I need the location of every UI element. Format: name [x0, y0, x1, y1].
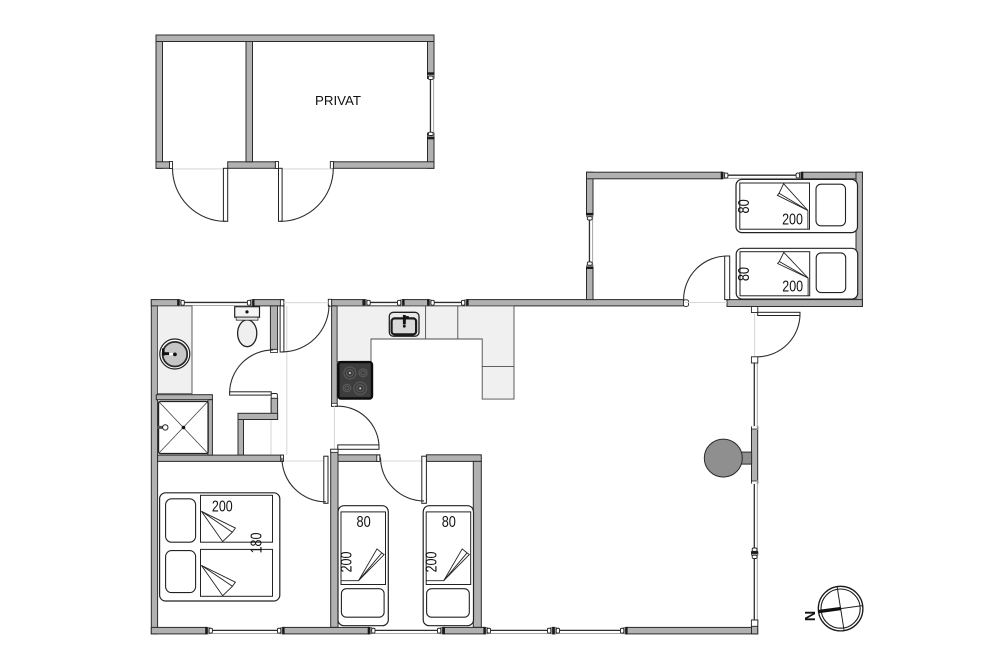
svg-text:N: N: [801, 611, 817, 621]
svg-text:PRIVAT: PRIVAT: [315, 93, 361, 108]
svg-text:200: 200: [782, 278, 803, 295]
svg-text:80: 80: [736, 199, 753, 214]
svg-text:80: 80: [442, 514, 457, 531]
svg-text:200: 200: [212, 499, 233, 516]
svg-text:80: 80: [357, 514, 372, 531]
svg-text:180: 180: [249, 532, 266, 553]
svg-text:80: 80: [736, 267, 753, 282]
svg-text:200: 200: [782, 212, 803, 229]
svg-text:200: 200: [424, 551, 441, 572]
svg-text:200: 200: [339, 551, 356, 572]
